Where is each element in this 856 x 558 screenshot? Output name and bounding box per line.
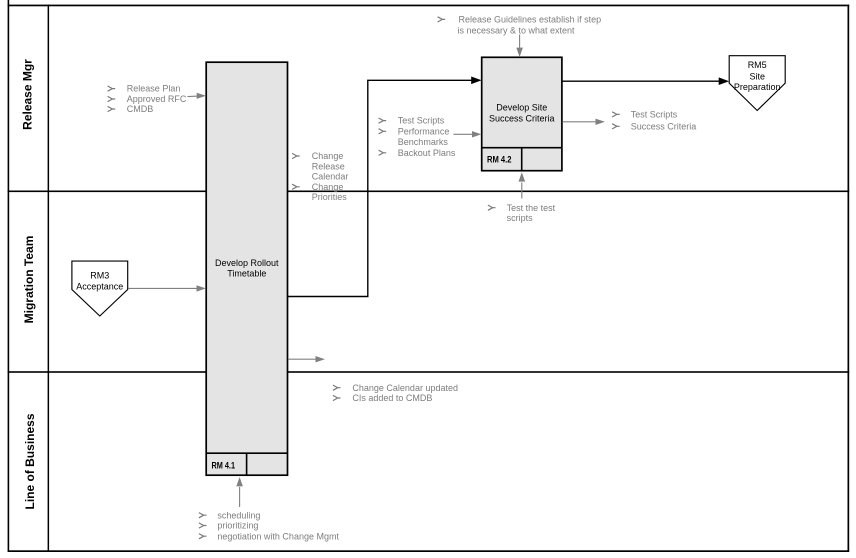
svg-text:Release Guidelines establish i: Release Guidelines establish if step [459, 15, 602, 25]
svg-text:Test the test: Test the test [507, 203, 556, 213]
svg-text:Line of Business: Line of Business [23, 413, 37, 509]
svg-text:Test Scripts: Test Scripts [631, 110, 678, 120]
svg-text:negotiation with Change Mgmt: negotiation with Change Mgmt [217, 531, 339, 541]
svg-text:scripts: scripts [507, 213, 534, 223]
svg-text:prioritizing: prioritizing [217, 521, 258, 531]
svg-text:Migration Team: Migration Team [22, 236, 36, 324]
svg-text:Performance: Performance [398, 126, 450, 136]
svg-text:RM 4.1: RM 4.1 [212, 460, 236, 471]
svg-text:Success Criteria: Success Criteria [631, 121, 697, 131]
svg-text:Change Calendar updated: Change Calendar updated [352, 383, 458, 393]
svg-text:Success Criteria: Success Criteria [489, 114, 555, 124]
svg-text:Priorities: Priorities [312, 192, 348, 202]
svg-text:Release Plan: Release Plan [127, 84, 181, 94]
svg-text:Timetable: Timetable [227, 269, 266, 279]
svg-text:Release: Release [312, 161, 345, 171]
svg-text:Benchmarks: Benchmarks [398, 137, 449, 147]
svg-text:Change: Change [312, 182, 344, 192]
svg-text:Site: Site [749, 71, 765, 81]
svg-text:Backout Plans: Backout Plans [398, 148, 456, 158]
svg-text:RM3: RM3 [90, 271, 109, 281]
svg-text:CMDB: CMDB [127, 104, 154, 114]
svg-text:Approved RFC: Approved RFC [127, 94, 187, 104]
svg-text:scheduling: scheduling [217, 510, 260, 520]
svg-text:Test Scripts: Test Scripts [398, 116, 445, 126]
svg-text:RM5: RM5 [748, 60, 767, 70]
svg-text:Develop Site: Develop Site [496, 103, 547, 113]
svg-text:Release Mgr: Release Mgr [21, 59, 35, 130]
svg-text:Change: Change [312, 151, 344, 161]
svg-text:Acceptance: Acceptance [76, 281, 123, 291]
svg-text:is necessary & to what extent: is necessary & to what extent [458, 25, 576, 35]
svg-text:Develop Rollout: Develop Rollout [215, 258, 279, 268]
svg-text:CIs added to CMDB: CIs added to CMDB [352, 393, 432, 403]
svg-text:RM 4.2: RM 4.2 [487, 155, 512, 166]
svg-text:Calendar: Calendar [312, 172, 349, 182]
svg-text:Preparation: Preparation [734, 82, 781, 92]
